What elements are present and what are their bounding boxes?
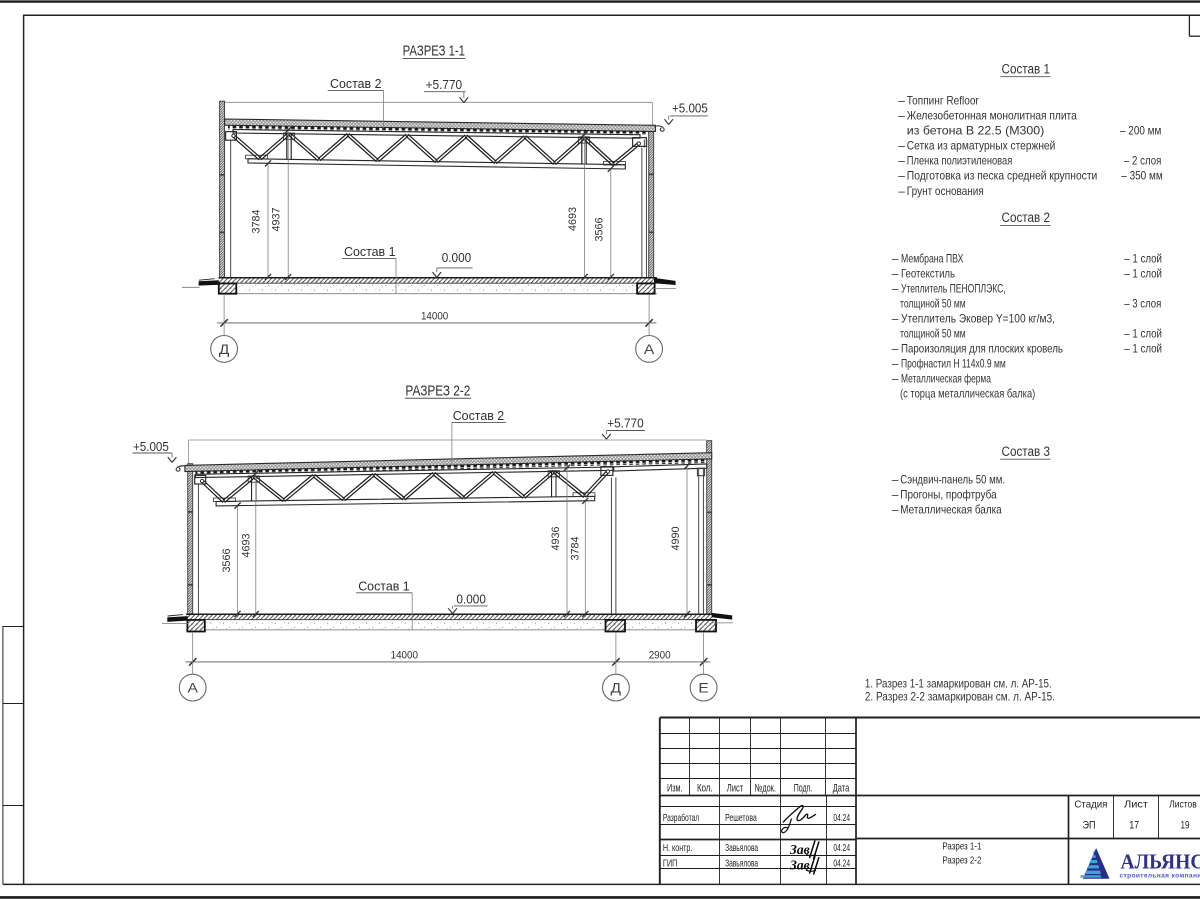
svg-text:3566: 3566: [221, 549, 233, 573]
svg-text:4936: 4936: [550, 527, 562, 551]
svg-text:– 1 слой: – 1 слой: [1124, 266, 1162, 280]
svg-text:+5.770: +5.770: [607, 416, 644, 431]
svg-text:Состав 1: Состав 1: [358, 579, 410, 594]
svg-text:строительная компания: строительная компания: [1120, 873, 1200, 880]
svg-text:3566: 3566: [593, 218, 605, 242]
svg-text:– 200 мм: – 200 мм: [1120, 124, 1161, 138]
svg-text:Железобетонная монолитная пли: Железобетонная монолитная плита: [907, 109, 1077, 123]
svg-text:толщиной 50 мм: толщиной 50 мм: [900, 326, 966, 340]
svg-text:Топпинг Refloor: Топпинг Refloor: [907, 93, 979, 107]
svg-text:Грунт основания: Грунт основания: [907, 184, 984, 198]
svg-text:Завьялова: Завьялова: [725, 859, 758, 870]
svg-text:–: –: [892, 341, 899, 355]
svg-text:Пленка полиэтиленовая: Пленка полиэтиленовая: [907, 154, 1013, 168]
svg-text:3784: 3784: [250, 210, 262, 234]
svg-text:–: –: [898, 139, 905, 153]
svg-text:– 1 слой: – 1 слой: [1124, 326, 1162, 340]
svg-text:Состав 2: Состав 2: [1002, 210, 1051, 226]
svg-text:Решетова: Решетова: [725, 813, 757, 824]
svg-text:– 2 слоя: – 2 слоя: [1124, 154, 1161, 168]
svg-text:19: 19: [1181, 820, 1190, 832]
svg-text:ЭП: ЭП: [1083, 820, 1096, 832]
svg-text:Лист: Лист: [1124, 799, 1148, 811]
svg-text:(с торца металлическая балка): (с торца металлическая балка): [900, 386, 1035, 400]
svg-text:Состав 2: Состав 2: [453, 408, 505, 423]
svg-text:Мембрана ПВХ: Мембрана ПВХ: [901, 251, 963, 265]
svg-text:Состав 1: Состав 1: [1002, 62, 1051, 78]
svg-text:толщиной 50 мм: толщиной 50 мм: [900, 296, 966, 310]
svg-text:1. Разрез 1-1 замаркирован см.: 1. Разрез 1-1 замаркирован см. л. АР-15.: [865, 676, 1052, 690]
svg-text:– 1 слой: – 1 слой: [1124, 251, 1162, 265]
svg-text:Разработал: Разработал: [663, 812, 699, 824]
svg-text:04.24: 04.24: [833, 843, 850, 854]
svg-text:04.24: 04.24: [833, 813, 850, 824]
svg-text:Дата: Дата: [833, 782, 850, 794]
svg-text:– 3 слоя: – 3 слоя: [1124, 296, 1161, 310]
svg-text:–: –: [892, 488, 899, 502]
svg-text:Листов: Листов: [1169, 799, 1197, 811]
svg-text:Сэндвич-панель 50 мм.: Сэндвич-панель 50 мм.: [900, 473, 1005, 487]
svg-text:Лист: Лист: [727, 782, 744, 794]
svg-text:Изм.: Изм.: [667, 782, 683, 794]
svg-text:+5.005: +5.005: [672, 100, 708, 115]
svg-text:–: –: [898, 93, 905, 107]
svg-text:–: –: [892, 281, 899, 295]
svg-text:–: –: [892, 251, 899, 265]
svg-text:Геотекстиль: Геотекстиль: [901, 266, 955, 280]
svg-text:3784: 3784: [569, 537, 581, 561]
svg-text:Пароизоляция для плоских крове: Пароизоляция для плоских кровель: [901, 341, 1063, 355]
svg-text:Подготовка из песка средней кр: Подготовка из песка средней крупности: [907, 169, 1098, 183]
svg-text:Состав 3: Состав 3: [1002, 444, 1051, 460]
svg-text:–: –: [892, 311, 899, 325]
svg-text:Состав 1: Состав 1: [344, 244, 396, 259]
svg-text:Разрез 1-1: Разрез 1-1: [942, 840, 981, 852]
svg-text:РАЗРЕЗ 1-1: РАЗРЕЗ 1-1: [403, 43, 465, 60]
svg-text:4937: 4937: [271, 208, 283, 232]
svg-text:Д: Д: [219, 342, 230, 358]
svg-text:–: –: [892, 356, 899, 370]
svg-text:ГИП: ГИП: [663, 859, 678, 870]
svg-text:–: –: [898, 169, 905, 183]
svg-text:4693: 4693: [240, 534, 252, 558]
svg-text:АЛЬЯНС: АЛЬЯНС: [1121, 850, 1200, 874]
svg-text:Профнастил Н 114х0.9 мм: Профнастил Н 114х0.9 мм: [901, 356, 1006, 370]
svg-text:2. Разрез 2-2 замаркирован см.: 2. Разрез 2-2 замаркирован см. л. АР-15.: [865, 690, 1055, 704]
svg-text:–: –: [892, 503, 899, 517]
svg-text:из бетона В 22.5 (М300): из бетона В 22.5 (М300): [907, 124, 1045, 138]
svg-text:Состав 2: Состав 2: [330, 76, 382, 91]
svg-text:№док.: №док.: [754, 782, 776, 794]
svg-text:14000: 14000: [421, 310, 448, 322]
svg-text:0.000: 0.000: [442, 250, 472, 265]
svg-text:–: –: [892, 473, 899, 487]
svg-text:4693: 4693: [567, 207, 579, 231]
svg-text:Кол.: Кол.: [697, 782, 713, 794]
svg-text:Н. контр.: Н. контр.: [663, 843, 693, 854]
svg-text:–: –: [898, 109, 905, 123]
svg-text:Утеплитель Эковер Y=100 кг/м3,: Утеплитель Эковер Y=100 кг/м3,: [901, 311, 1055, 325]
svg-text:04.24: 04.24: [833, 859, 850, 870]
svg-text:+5.770: +5.770: [426, 77, 463, 92]
svg-text:– 1 слой: – 1 слой: [1124, 341, 1162, 355]
svg-text:0.000: 0.000: [456, 592, 486, 607]
svg-text:Металлическая балка: Металлическая балка: [900, 503, 1002, 517]
svg-text:Утеплитель ПЕНОПЛЭКС,: Утеплитель ПЕНОПЛЭКС,: [901, 281, 1006, 295]
svg-text:–: –: [892, 266, 899, 280]
svg-text:2900: 2900: [649, 649, 671, 661]
svg-text:Прогоны, профтруба: Прогоны, профтруба: [900, 488, 997, 502]
svg-text:+5.005: +5.005: [133, 439, 169, 454]
svg-text:Завьялова: Завьялова: [725, 843, 758, 854]
svg-text:–: –: [898, 184, 905, 198]
svg-text:РАЗРЕЗ 2-2: РАЗРЕЗ 2-2: [405, 382, 470, 399]
svg-text:–: –: [898, 154, 905, 168]
svg-text:4990: 4990: [670, 527, 682, 551]
svg-text:Разрез 2-2: Разрез 2-2: [942, 854, 981, 866]
svg-text:Д: Д: [611, 681, 622, 697]
svg-text:А: А: [644, 342, 655, 358]
svg-text:А: А: [188, 681, 199, 697]
svg-text:Стадия: Стадия: [1074, 799, 1107, 811]
svg-text:– 350 мм: – 350 мм: [1121, 169, 1162, 183]
svg-text:14000: 14000: [391, 649, 418, 661]
svg-text:Металлическая ферма: Металлическая ферма: [901, 371, 991, 385]
svg-text:17: 17: [1129, 820, 1139, 832]
svg-text:Подп.: Подп.: [794, 782, 813, 794]
svg-text:Е: Е: [698, 681, 708, 697]
svg-text:Сетка из арматурных стержней: Сетка из арматурных стержней: [907, 139, 1056, 153]
svg-text:–: –: [892, 371, 899, 385]
